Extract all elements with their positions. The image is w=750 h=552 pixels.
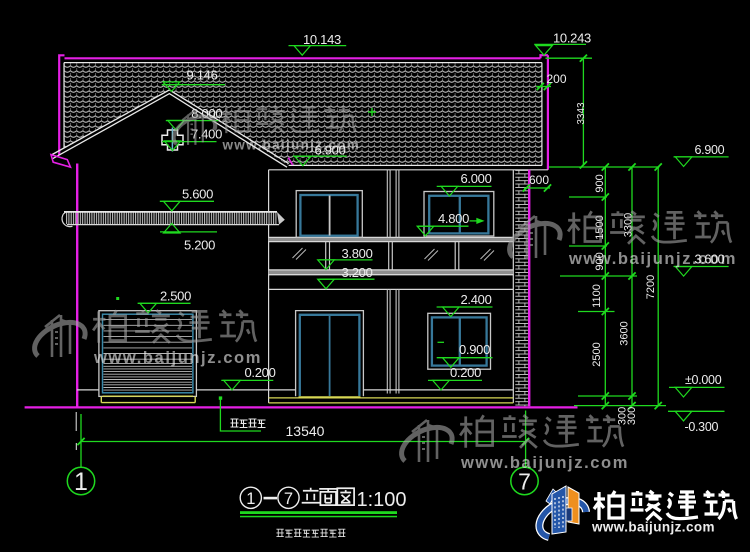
svg-text:6.000: 6.000 [461, 171, 492, 186]
svg-text:-0.300: -0.300 [685, 420, 719, 434]
svg-text:3343: 3343 [576, 102, 587, 125]
svg-text:1: 1 [74, 468, 88, 496]
svg-text:10.143: 10.143 [303, 32, 341, 47]
svg-text:10.243: 10.243 [553, 31, 591, 46]
svg-text:1:100: 1:100 [357, 489, 407, 511]
svg-text:900: 900 [594, 174, 606, 192]
svg-text:300: 300 [626, 407, 638, 425]
svg-text:1: 1 [246, 490, 255, 508]
svg-text:6.900: 6.900 [695, 143, 725, 157]
svg-text:4.800: 4.800 [438, 211, 469, 226]
svg-text:5.600: 5.600 [182, 187, 213, 202]
svg-text:7200: 7200 [645, 275, 657, 299]
svg-text:1100: 1100 [591, 284, 603, 308]
svg-text:0.900: 0.900 [459, 342, 490, 357]
svg-text:13540: 13540 [286, 423, 325, 439]
svg-text:0.200: 0.200 [450, 365, 481, 380]
svg-text:200: 200 [547, 72, 567, 86]
svg-text:3.800: 3.800 [342, 246, 373, 261]
svg-text:600: 600 [529, 173, 549, 187]
svg-text:7: 7 [518, 469, 531, 495]
svg-text:3600: 3600 [619, 321, 631, 345]
svg-text:5.200: 5.200 [184, 237, 215, 252]
svg-text:7: 7 [284, 490, 293, 508]
svg-text:±0.000: ±0.000 [685, 373, 722, 387]
svg-text:www.baijunjz.com: www.baijunjz.com [591, 520, 715, 535]
svg-text:2.500: 2.500 [160, 289, 191, 304]
svg-text:2.400: 2.400 [461, 292, 492, 307]
svg-text:3.200: 3.200 [342, 265, 373, 280]
svg-text:0.200: 0.200 [245, 365, 276, 380]
svg-text:2500: 2500 [591, 342, 603, 366]
svg-text:9.146: 9.146 [187, 67, 218, 82]
